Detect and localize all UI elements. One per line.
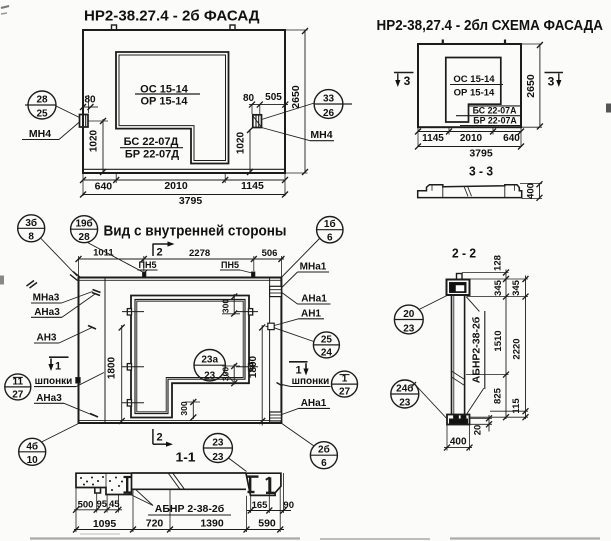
svg-text:33: 33 — [323, 94, 335, 105]
svg-text:БС 22-07Д: БС 22-07Д — [124, 136, 179, 148]
svg-text:2220: 2220 — [511, 338, 522, 359]
svg-text:МН4: МН4 — [310, 129, 332, 141]
svg-text:1145: 1145 — [241, 180, 264, 192]
svg-text:23: 23 — [403, 323, 415, 334]
svg-text:345: 345 — [493, 279, 504, 296]
svg-text:2б: 2б — [318, 444, 330, 456]
svg-text:ОР 15-14: ОР 15-14 — [454, 88, 495, 99]
svg-text:8: 8 — [28, 231, 34, 242]
svg-text:590: 590 — [258, 518, 276, 530]
svg-text:БС 22-07А: БС 22-07А — [473, 106, 518, 116]
svg-text:2: 2 — [156, 432, 162, 444]
svg-text:3795: 3795 — [179, 195, 203, 207]
svg-text:500: 500 — [78, 499, 94, 510]
svg-text:4б: 4б — [26, 440, 38, 452]
svg-text:6: 6 — [327, 232, 333, 243]
svg-text:АНа1: АНа1 — [301, 294, 327, 305]
svg-text:1510: 1510 — [493, 330, 504, 351]
svg-text:3795: 3795 — [469, 148, 493, 160]
svg-text:МН4: МН4 — [29, 128, 51, 140]
svg-text:25: 25 — [321, 334, 333, 345]
svg-text:11: 11 — [13, 376, 24, 387]
svg-text:НР2-38.27.4 - 2б ФАСАД: НР2-38.27.4 - 2б ФАСАД — [84, 8, 260, 25]
svg-text:20: 20 — [403, 309, 415, 320]
svg-text:3: 3 — [548, 75, 555, 89]
svg-text:25: 25 — [36, 109, 48, 120]
svg-text:2010: 2010 — [164, 180, 188, 192]
svg-text:300: 300 — [179, 401, 189, 415]
svg-text:28: 28 — [79, 232, 91, 243]
svg-text:24б: 24б — [396, 383, 413, 395]
svg-text:1б: 1б — [324, 218, 336, 230]
svg-text:2: 2 — [156, 247, 162, 259]
svg-text:3 - 3: 3 - 3 — [469, 165, 493, 179]
svg-text:ПН5: ПН5 — [221, 260, 239, 270]
svg-text:19б: 19б — [75, 218, 92, 230]
svg-text:НР2-38,27.4 - 2бл СХЕМА ФАСАДА: НР2-38,27.4 - 2бл СХЕМА ФАСАДА — [377, 17, 604, 34]
svg-text:95: 95 — [97, 499, 108, 510]
svg-text:400: 400 — [450, 437, 467, 448]
svg-text:165: 165 — [252, 500, 269, 511]
svg-text:1: 1 — [55, 361, 61, 373]
svg-text:2650: 2650 — [290, 85, 302, 109]
svg-text:шпонки: шпонки — [292, 376, 330, 387]
svg-text:505: 505 — [265, 92, 282, 103]
svg-text:1145: 1145 — [422, 133, 444, 144]
svg-text:1390: 1390 — [200, 518, 224, 530]
svg-text:БР 22-07Д: БР 22-07Д — [125, 149, 179, 161]
svg-text:300: 300 — [220, 299, 230, 313]
svg-text:БР 22-07А: БР 22-07А — [473, 116, 517, 126]
svg-text:45: 45 — [109, 499, 120, 510]
svg-text:2010: 2010 — [460, 133, 483, 144]
svg-text:ОС 15-14: ОС 15-14 — [453, 74, 495, 85]
svg-text:23: 23 — [204, 370, 216, 381]
svg-text:28: 28 — [36, 95, 48, 106]
svg-text:Вид с внутренней стороны: Вид с внутренней стороны — [104, 224, 287, 240]
svg-text:1800: 1800 — [106, 356, 117, 379]
svg-text:400: 400 — [526, 183, 537, 199]
svg-text:2 - 2: 2 - 2 — [452, 246, 476, 261]
svg-text:АНа3: АНа3 — [36, 393, 62, 404]
svg-text:23: 23 — [212, 452, 224, 463]
svg-text:1095: 1095 — [93, 518, 117, 530]
svg-text:640: 640 — [503, 133, 520, 144]
svg-text:АБНР 2-38-2б: АБНР 2-38-2б — [155, 503, 225, 515]
svg-text:1011: 1011 — [93, 248, 114, 259]
svg-text:23: 23 — [399, 398, 411, 409]
svg-text:2650: 2650 — [525, 74, 537, 98]
svg-text:АН3: АН3 — [36, 333, 56, 344]
svg-text:80: 80 — [84, 95, 96, 106]
svg-text:1020: 1020 — [236, 131, 247, 154]
svg-text:23а: 23а — [201, 355, 218, 366]
svg-text:23: 23 — [212, 438, 224, 449]
svg-text:10: 10 — [27, 455, 39, 466]
svg-text:2278: 2278 — [189, 248, 210, 259]
svg-text:АНа1: АНа1 — [301, 398, 327, 409]
svg-text:128: 128 — [492, 255, 503, 271]
svg-text:МНа1: МНа1 — [300, 262, 327, 273]
svg-text:20: 20 — [473, 425, 484, 436]
svg-text:825: 825 — [492, 387, 503, 404]
svg-text:АН1: АН1 — [301, 308, 321, 319]
svg-text:506: 506 — [262, 248, 278, 259]
svg-text:24: 24 — [321, 347, 333, 358]
svg-text:шпонки: шпонки — [35, 376, 73, 387]
svg-text:1: 1 — [295, 365, 301, 377]
svg-text:27: 27 — [12, 389, 24, 400]
svg-text:6: 6 — [321, 458, 327, 469]
svg-text:АБНР2-38-2б: АБНР2-38-2б — [471, 316, 483, 383]
svg-text:720: 720 — [146, 518, 164, 530]
svg-text:1: 1 — [342, 374, 348, 385]
svg-text:1020: 1020 — [89, 129, 100, 152]
svg-text:90: 90 — [283, 500, 294, 511]
svg-text:27: 27 — [339, 387, 351, 398]
svg-text:640: 640 — [95, 181, 113, 193]
svg-text:345: 345 — [511, 279, 522, 296]
svg-text:3б: 3б — [25, 217, 37, 229]
svg-text:1-1: 1-1 — [176, 450, 196, 465]
svg-text:1800: 1800 — [248, 355, 259, 378]
svg-text:26: 26 — [323, 108, 335, 119]
svg-text:АНа3: АНа3 — [34, 307, 60, 318]
svg-text:80: 80 — [243, 93, 255, 104]
svg-text:МНа3: МНа3 — [33, 293, 60, 304]
svg-text:3: 3 — [404, 74, 411, 88]
svg-text:ОР 15-14: ОР 15-14 — [140, 96, 188, 108]
